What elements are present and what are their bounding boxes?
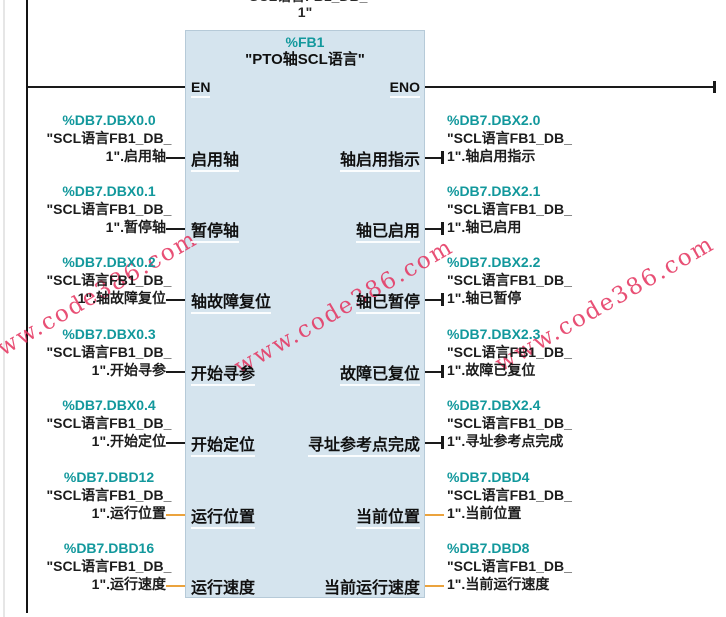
output-pin-label[interactable]: 轴启用指示 xyxy=(340,146,420,170)
output-assign-tick xyxy=(441,151,444,164)
output-assign-tick xyxy=(441,365,444,378)
output-wire xyxy=(425,228,441,230)
editor-left-edge xyxy=(3,0,5,617)
operand-name-line: 1".寻址参考点完成 xyxy=(447,432,667,450)
operand-name-line: "SCL语言FB1_DB_ xyxy=(447,129,667,147)
input-pin-label[interactable]: 轴故障复位 xyxy=(191,288,271,312)
output-operand[interactable]: %DB7.DBD8"SCL语言FB1_DB_1".当前运行速度 xyxy=(447,539,667,593)
operand-name-line: "SCL语言FB1_DB_ xyxy=(447,271,667,289)
eno-pin-label[interactable]: ENO xyxy=(390,79,420,95)
operand-address: %DB7.DBD16 xyxy=(44,539,174,557)
input-operand[interactable]: %DB7.DBD16"SCL语言FB1_DB_1".运行速度 xyxy=(44,539,174,593)
operand-address: %DB7.DBD8 xyxy=(447,539,667,557)
input-wire xyxy=(166,371,185,373)
en-pin-label[interactable]: EN xyxy=(191,79,210,95)
output-pin-label[interactable]: 故障已复位 xyxy=(340,360,420,384)
operand-address: %DB7.DBD12 xyxy=(44,468,174,486)
output-assign-tick xyxy=(441,222,444,235)
output-pin-label[interactable]: 当前运行速度 xyxy=(324,574,420,598)
operand-name-line: 1".轴已暂停 xyxy=(447,289,667,307)
en-wire xyxy=(28,86,185,88)
input-pin-label[interactable]: 开始寻参 xyxy=(191,360,255,384)
operand-name-line: 1".运行位置 xyxy=(44,504,174,522)
operand-name-line: "SCL语言FB1_DB_ xyxy=(447,414,667,432)
operand-address: %DB7.DBX0.3 xyxy=(44,325,174,343)
fbd-editor-canvas: "SCL语言FB1_DB_ 1" %FB1 "PTO轴SCL语言" EN ENO… xyxy=(0,0,726,617)
output-operand[interactable]: %DB7.DBX2.2"SCL语言FB1_DB_1".轴已暂停 xyxy=(447,253,667,307)
input-pin-label[interactable]: 启用轴 xyxy=(191,146,239,170)
output-operand[interactable]: %DB7.DBX2.3"SCL语言FB1_DB_1".故障已复位 xyxy=(447,325,667,379)
operand-name-line: "SCL语言FB1_DB_ xyxy=(447,557,667,575)
operand-name-line: 1".开始定位 xyxy=(44,432,174,450)
output-operand[interactable]: %DB7.DBX2.4"SCL语言FB1_DB_1".寻址参考点完成 xyxy=(447,396,667,450)
operand-address: %DB7.DBX0.2 xyxy=(44,253,174,271)
input-wire xyxy=(166,514,185,516)
output-pin-label[interactable]: 轴已启用 xyxy=(356,217,420,241)
input-operand[interactable]: %DB7.DBD12"SCL语言FB1_DB_1".运行位置 xyxy=(44,468,174,522)
input-pin-label[interactable]: 运行速度 xyxy=(191,574,255,598)
operand-name-line: 1".轴启用指示 xyxy=(447,147,667,165)
input-operand[interactable]: %DB7.DBX0.0"SCL语言FB1_DB_1".启用轴 xyxy=(44,111,174,165)
output-assign-tick xyxy=(441,436,444,449)
input-pin-label[interactable]: 开始定位 xyxy=(191,431,255,455)
output-pin-label[interactable]: 当前位置 xyxy=(356,503,420,527)
output-wire xyxy=(425,157,441,159)
output-wire xyxy=(425,371,441,373)
operand-name-line: "SCL语言FB1_DB_ xyxy=(447,343,667,361)
input-operand[interactable]: %DB7.DBX0.2"SCL语言FB1_DB_1".轴故障复位 xyxy=(44,253,174,307)
output-operand[interactable]: %DB7.DBX2.1"SCL语言FB1_DB_1".轴已启用 xyxy=(447,182,667,236)
input-wire xyxy=(166,299,185,301)
output-wire xyxy=(425,585,444,587)
operand-name-line: 1".轴故障复位 xyxy=(44,289,174,307)
operand-name-line: "SCL语言FB1_DB_ xyxy=(44,557,174,575)
fb-block-title: "PTO轴SCL语言" xyxy=(185,51,425,69)
output-pin-label[interactable]: 寻址参考点完成 xyxy=(308,431,420,455)
power-rail xyxy=(26,0,28,613)
operand-name-line: "SCL语言FB1_DB_ xyxy=(44,343,174,361)
operand-address: %DB7.DBX2.0 xyxy=(447,111,667,129)
operand-address: %DB7.DBX0.0 xyxy=(44,111,174,129)
instance-db-label-line2: 1" xyxy=(185,4,425,20)
fb-block-address: %FB1 xyxy=(185,33,425,51)
output-wire xyxy=(425,514,444,516)
operand-name-line: "SCL语言FB1_DB_ xyxy=(44,200,174,218)
input-wire xyxy=(166,585,185,587)
operand-address: %DB7.DBX0.1 xyxy=(44,182,174,200)
input-operand[interactable]: %DB7.DBX0.4"SCL语言FB1_DB_1".开始定位 xyxy=(44,396,174,450)
input-pin-label[interactable]: 暂停轴 xyxy=(191,217,239,241)
operand-name-line: 1".运行速度 xyxy=(44,575,174,593)
operand-address: %DB7.DBX0.4 xyxy=(44,396,174,414)
operand-name-line: 1".启用轴 xyxy=(44,147,174,165)
operand-name-line: 1".当前位置 xyxy=(447,504,667,522)
output-operand[interactable]: %DB7.DBX2.0"SCL语言FB1_DB_1".轴启用指示 xyxy=(447,111,667,165)
operand-address: %DB7.DBX2.3 xyxy=(447,325,667,343)
operand-name-line: "SCL语言FB1_DB_ xyxy=(447,486,667,504)
output-operand[interactable]: %DB7.DBD4"SCL语言FB1_DB_1".当前位置 xyxy=(447,468,667,522)
input-wire xyxy=(166,157,185,159)
operand-name-line: 1".故障已复位 xyxy=(447,361,667,379)
input-wire xyxy=(166,442,185,444)
operand-address: %DB7.DBD4 xyxy=(447,468,667,486)
output-pin-label[interactable]: 轴已暂停 xyxy=(356,288,420,312)
input-operand[interactable]: %DB7.DBX0.3"SCL语言FB1_DB_1".开始寻参 xyxy=(44,325,174,379)
operand-name-line: 1".暂停轴 xyxy=(44,218,174,236)
input-wire xyxy=(166,228,185,230)
fb-block-header[interactable]: %FB1 "PTO轴SCL语言" xyxy=(185,33,425,69)
operand-name-line: "SCL语言FB1_DB_ xyxy=(44,414,174,432)
operand-name-line: 1".轴已启用 xyxy=(447,218,667,236)
output-wire xyxy=(425,299,441,301)
operand-name-line: 1".开始寻参 xyxy=(44,361,174,379)
operand-name-line: "SCL语言FB1_DB_ xyxy=(44,271,174,289)
operand-name-line: "SCL语言FB1_DB_ xyxy=(44,129,174,147)
operand-name-line: "SCL语言FB1_DB_ xyxy=(44,486,174,504)
output-wire xyxy=(425,442,441,444)
input-pin-label[interactable]: 运行位置 xyxy=(191,503,255,527)
instance-db-label[interactable]: "SCL语言FB1_DB_ 1" xyxy=(185,0,425,20)
output-assign-tick xyxy=(441,293,444,306)
operand-name-line: 1".当前运行速度 xyxy=(447,575,667,593)
operand-name-line: "SCL语言FB1_DB_ xyxy=(447,200,667,218)
operand-address: %DB7.DBX2.1 xyxy=(447,182,667,200)
eno-wire xyxy=(425,86,715,88)
operand-address: %DB7.DBX2.4 xyxy=(447,396,667,414)
input-operand[interactable]: %DB7.DBX0.1"SCL语言FB1_DB_1".暂停轴 xyxy=(44,182,174,236)
eno-end-tick xyxy=(713,81,716,93)
operand-address: %DB7.DBX2.2 xyxy=(447,253,667,271)
